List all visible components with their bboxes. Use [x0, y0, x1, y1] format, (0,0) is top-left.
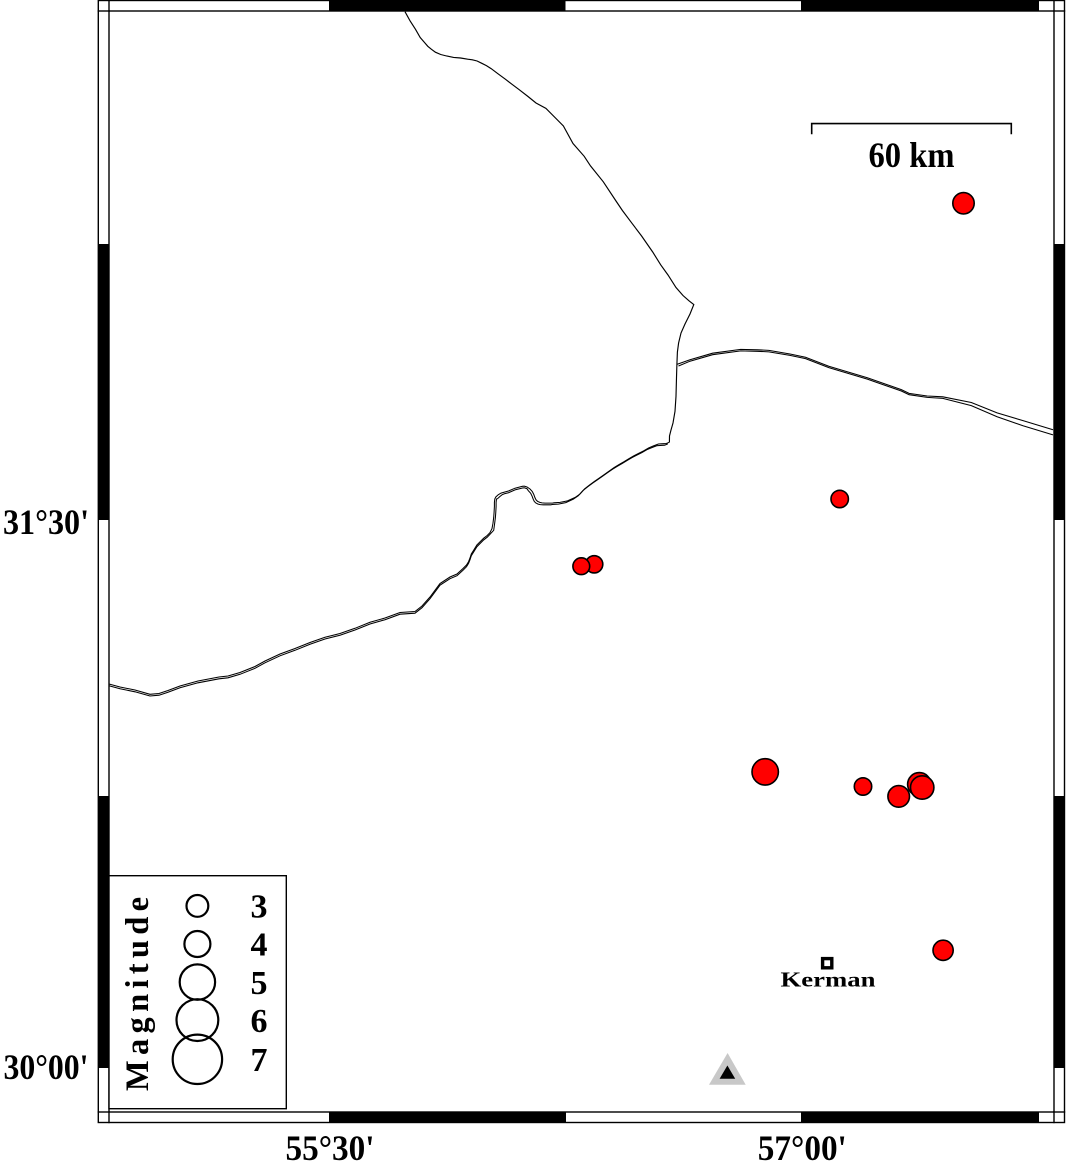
svg-text:60 km: 60 km: [869, 135, 955, 175]
svg-text:4: 4: [251, 927, 268, 964]
svg-text:5: 5: [251, 965, 268, 1002]
svg-text:31°30': 31°30': [3, 502, 89, 542]
svg-text:3: 3: [251, 889, 268, 926]
svg-text:Kerman: Kerman: [781, 968, 876, 992]
svg-text:30°00': 30°00': [4, 1047, 89, 1087]
svg-text:55°30': 55°30': [286, 1128, 375, 1161]
svg-text:6: 6: [251, 1003, 268, 1040]
svg-text:7: 7: [251, 1042, 268, 1079]
svg-text:Magnitude: Magnitude: [120, 892, 156, 1091]
svg-text:57°00': 57°00': [758, 1128, 847, 1161]
